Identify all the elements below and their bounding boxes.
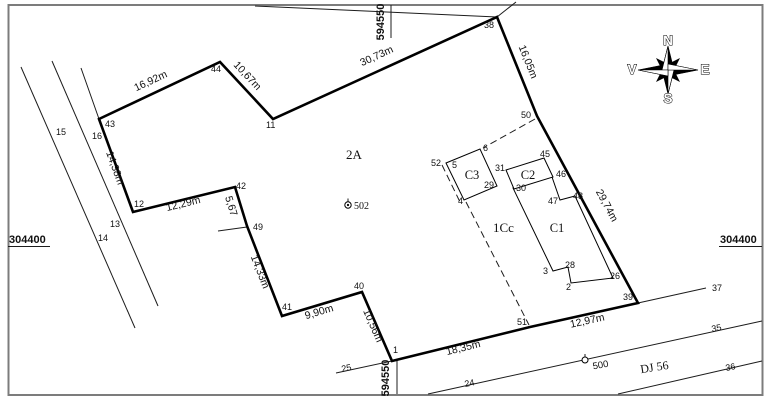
point-13-label: 13 (110, 219, 120, 229)
point-12-label: 12 (134, 199, 144, 209)
point-5-label: 5 (452, 160, 457, 170)
point-46-label: 46 (556, 169, 566, 179)
measure-40-41: 9,90m (303, 302, 335, 322)
point-28-label: 28 (565, 260, 575, 270)
compass-n-white-half (662, 46, 668, 70)
point-26-label: 26 (610, 271, 620, 281)
grid-label-bottom: 594550 (380, 360, 392, 397)
survey-marker-502 (345, 199, 351, 209)
measure-12-43: 14,38m (103, 149, 126, 186)
point-41-label: 41 (282, 302, 292, 312)
witness-line-49 (218, 227, 247, 231)
building-c3-label: C3 (465, 168, 480, 182)
point-6-label: 6 (483, 143, 488, 153)
point-16-label: 16 (92, 131, 102, 141)
road-dj56-label: DJ 56 (639, 358, 669, 376)
point-11-label: 11 (266, 120, 275, 130)
point-42-label: 42 (236, 181, 246, 191)
dashed-landuse-boundary (442, 119, 535, 325)
point-36-label: 36 (725, 361, 737, 373)
measure-43-44: 16,92m (132, 68, 169, 94)
grid-ticks (8, 5, 762, 394)
compass-west-label: V (627, 62, 636, 77)
marker-502-label: 502 (354, 201, 369, 212)
point-4-label: 4 (458, 196, 463, 206)
point-51-label: 51 (517, 317, 527, 327)
point-45-label: 45 (540, 149, 550, 159)
point-29-label: 29 (484, 180, 494, 190)
measure-41-49: 14,33m (248, 253, 272, 290)
road-edge-39-to-37 (638, 288, 706, 303)
point-3-label: 3 (543, 266, 548, 276)
point-44-label: 44 (211, 64, 221, 74)
measure-50-39: 29,74m (593, 187, 620, 224)
grid-label-top: 594550 (375, 4, 387, 41)
point-25-label: 25 (340, 362, 352, 374)
marker-502-dot (347, 204, 349, 206)
compass-north-label: N (663, 33, 673, 48)
cadastral-plan-drawing: N S E V 594550 594550 304400 304400 16,9… (0, 0, 770, 400)
building-c1-label: C1 (550, 221, 565, 235)
point-52-label: 52 (431, 158, 441, 168)
left-road-line-inner (81, 68, 99, 119)
point-50-label: 50 (521, 110, 531, 120)
point-35-label: 35 (711, 322, 723, 334)
measure-44-11: 10,67m (231, 59, 264, 93)
point-15-label: 15 (56, 127, 66, 137)
landuse-1cc-label: 1Cc (493, 220, 514, 235)
point-40-label: 40 (354, 281, 364, 291)
point-14-label: 14 (98, 233, 108, 243)
left-road-line-outer (21, 67, 135, 328)
point-30-label: 30 (516, 183, 526, 193)
compass-east-label: E (700, 62, 709, 77)
compass-w-white-half (638, 70, 668, 76)
grid-label-left: 304400 (9, 234, 46, 246)
measure-39-51: 12,97m (569, 311, 606, 330)
road-marker-500 (582, 354, 588, 363)
region-2a-label: 2A (346, 147, 363, 162)
drawing-frame (9, 5, 763, 395)
point-1-label: 1 (393, 345, 398, 355)
bottom-road-lines (336, 288, 762, 394)
marker-500-circle (582, 357, 588, 363)
point-24-label: 24 (464, 377, 476, 389)
measure-1-40: 10,56m (360, 307, 385, 344)
measure-49-42: 5,67 (222, 195, 239, 218)
point-43-label: 43 (105, 119, 115, 129)
grid-label-right: 304400 (720, 234, 757, 246)
compass-rose: N S E V (627, 33, 709, 106)
dashed-50-to-6 (483, 119, 535, 148)
marker-500-label: 500 (592, 359, 610, 373)
point-39-label: 39 (623, 292, 633, 302)
point-37-label: 37 (712, 283, 722, 293)
measure-42-12: 12,29m (165, 194, 202, 214)
point-48-label: 48 (573, 191, 583, 201)
measure-51-1: 18,35m (445, 338, 482, 358)
point-31-label: 31 (495, 163, 505, 173)
point-47-label: 47 (548, 196, 558, 206)
point-38-label: 38 (484, 20, 494, 30)
cadastral-plan-page: N S E V 594550 594550 304400 304400 16,9… (0, 0, 770, 400)
compass-south-label: S (663, 91, 672, 106)
point-49-label: 49 (253, 222, 263, 232)
compass-e-white-half (668, 64, 698, 70)
area-labels: 2A 1Cc 502 C3 C2 C1 DJ 56 500 (346, 147, 669, 376)
point-2-label: 2 (566, 282, 571, 292)
building-c2-label: C2 (521, 168, 536, 182)
